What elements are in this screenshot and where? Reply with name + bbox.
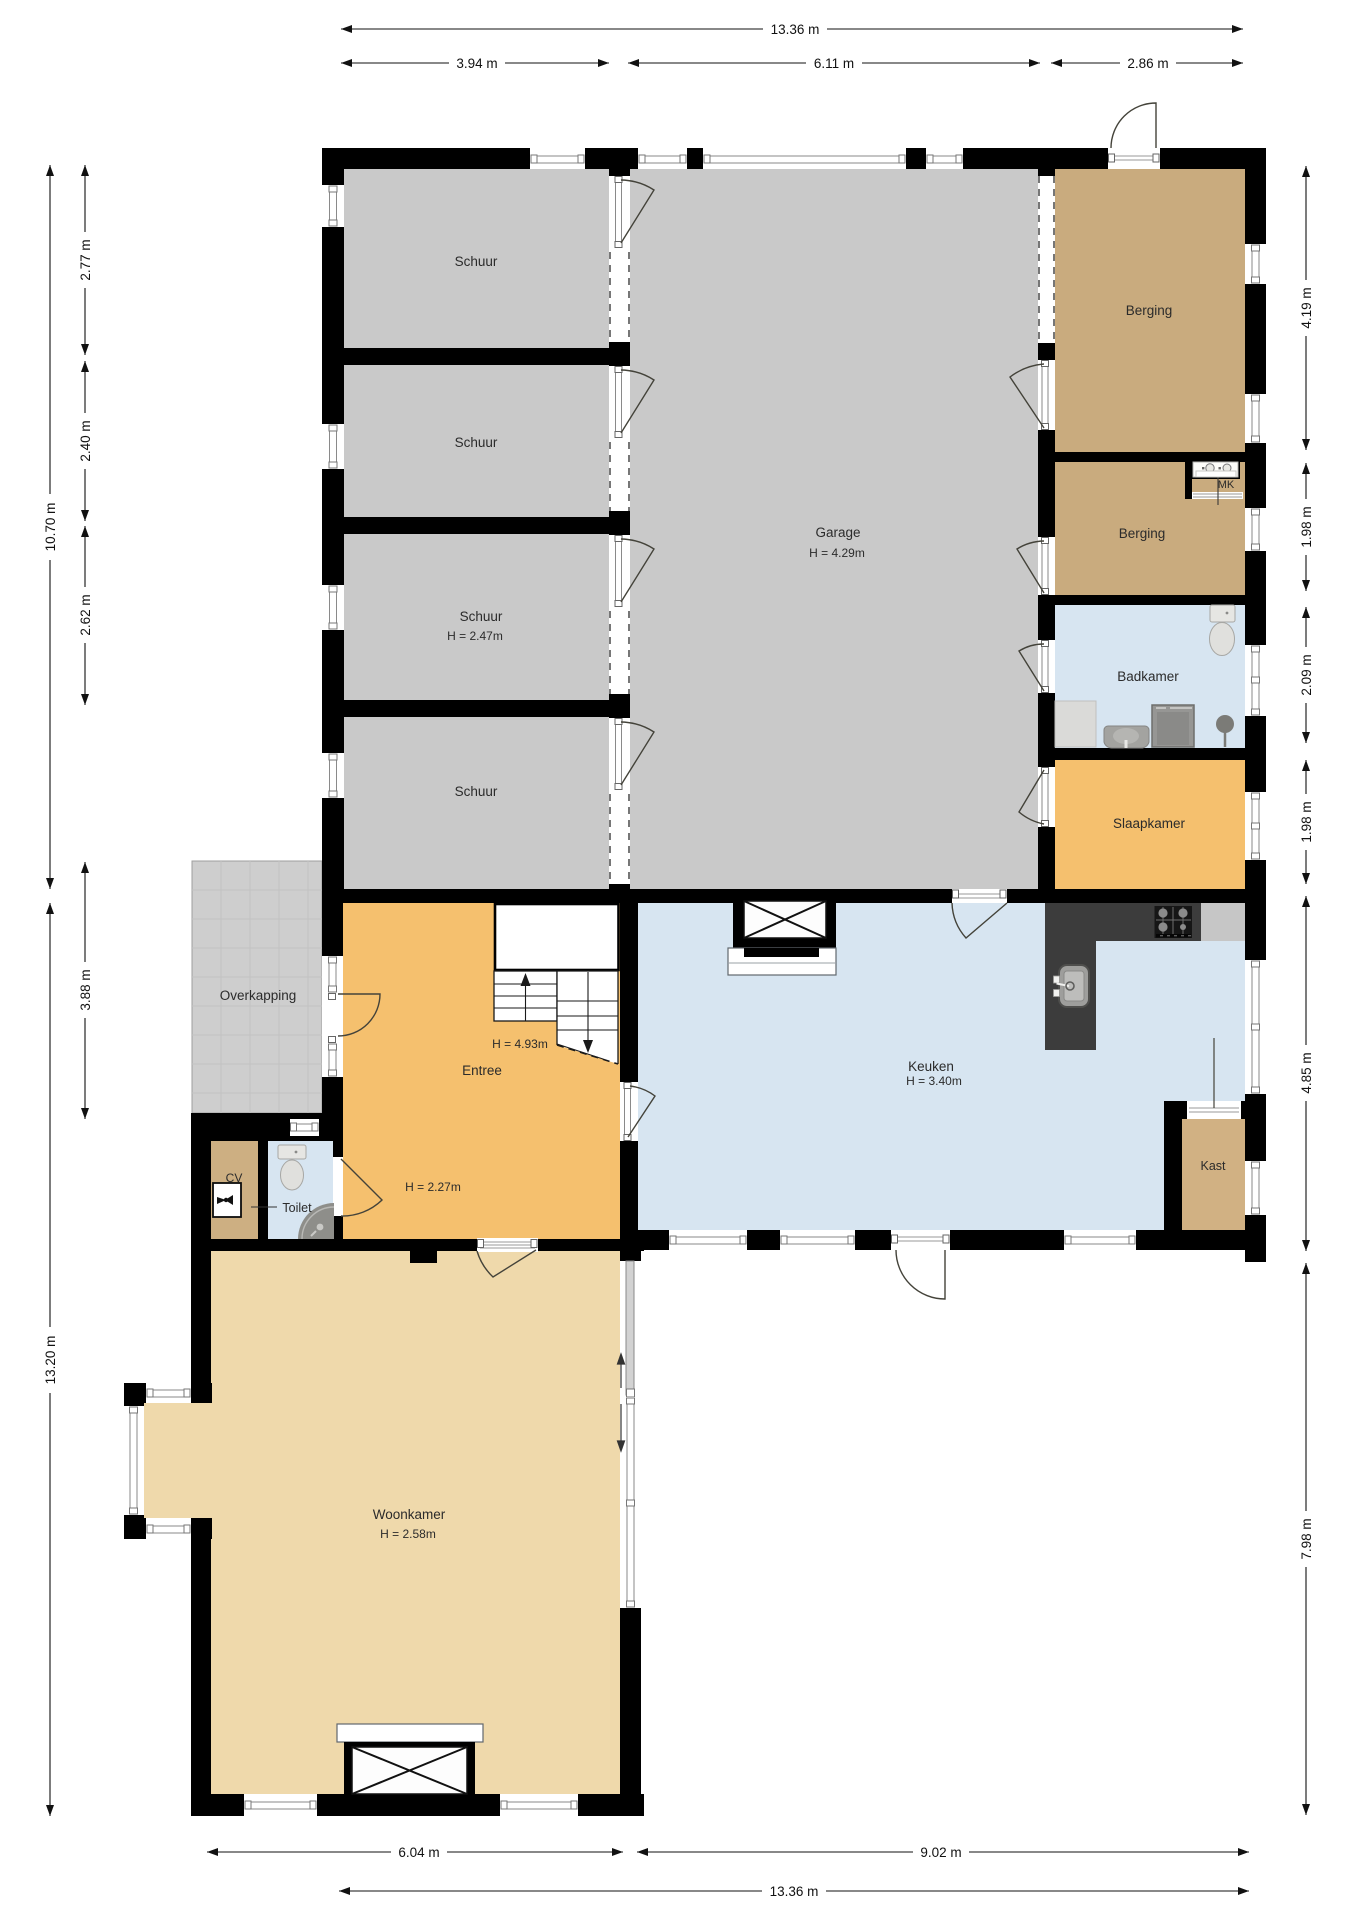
svg-text:6.04 m: 6.04 m: [398, 1845, 439, 1860]
svg-text:Keuken: Keuken: [908, 1059, 954, 1074]
svg-text:Schuur: Schuur: [460, 609, 503, 624]
svg-text:H = 2.27m: H = 2.27m: [405, 1180, 461, 1194]
svg-text:2.62 m: 2.62 m: [78, 594, 93, 635]
svg-text:Kast: Kast: [1200, 1159, 1226, 1173]
svg-text:Entree: Entree: [462, 1063, 502, 1078]
svg-text:Garage: Garage: [815, 525, 860, 540]
svg-text:4.85 m: 4.85 m: [1299, 1052, 1314, 1093]
svg-text:2.86 m: 2.86 m: [1127, 56, 1168, 71]
svg-text:Badkamer: Badkamer: [1117, 669, 1179, 684]
svg-text:1.98 m: 1.98 m: [1299, 506, 1314, 547]
svg-text:H = 4.93m: H = 4.93m: [492, 1037, 548, 1051]
svg-text:2.40 m: 2.40 m: [78, 420, 93, 461]
svg-text:9.02 m: 9.02 m: [920, 1845, 961, 1860]
svg-text:H = 2.47m: H = 2.47m: [447, 629, 503, 643]
svg-text:Slaapkamer: Slaapkamer: [1113, 816, 1186, 831]
svg-text:7.98 m: 7.98 m: [1299, 1518, 1314, 1559]
svg-text:4.19 m: 4.19 m: [1299, 287, 1314, 328]
svg-text:10.70 m: 10.70 m: [43, 503, 58, 552]
svg-text:H = 4.29m: H = 4.29m: [809, 546, 865, 560]
svg-text:6.11 m: 6.11 m: [814, 56, 854, 71]
svg-text:Overkapping: Overkapping: [220, 988, 297, 1003]
svg-text:3.88 m: 3.88 m: [78, 969, 93, 1010]
svg-text:H = 2.58m: H = 2.58m: [380, 1527, 436, 1541]
svg-text:13.20 m: 13.20 m: [43, 1336, 58, 1385]
svg-text:13.36 m: 13.36 m: [770, 1884, 819, 1899]
svg-text:Schuur: Schuur: [455, 784, 498, 799]
svg-text:Schuur: Schuur: [455, 254, 498, 269]
svg-text:MK: MK: [1218, 479, 1235, 491]
svg-text:1.98 m: 1.98 m: [1299, 801, 1314, 842]
svg-text:Berging: Berging: [1119, 526, 1166, 541]
svg-text:CV: CV: [226, 1171, 243, 1185]
svg-text:2.77 m: 2.77 m: [78, 239, 93, 280]
svg-text:Schuur: Schuur: [455, 435, 498, 450]
svg-text:H = 3.40m: H = 3.40m: [906, 1074, 962, 1088]
svg-text:2.09 m: 2.09 m: [1299, 654, 1314, 695]
svg-text:Toilet: Toilet: [282, 1201, 312, 1215]
svg-text:Woonkamer: Woonkamer: [373, 1507, 446, 1522]
svg-text:3.94 m: 3.94 m: [456, 56, 497, 71]
svg-text:Berging: Berging: [1126, 303, 1173, 318]
svg-text:13.36 m: 13.36 m: [771, 22, 820, 37]
